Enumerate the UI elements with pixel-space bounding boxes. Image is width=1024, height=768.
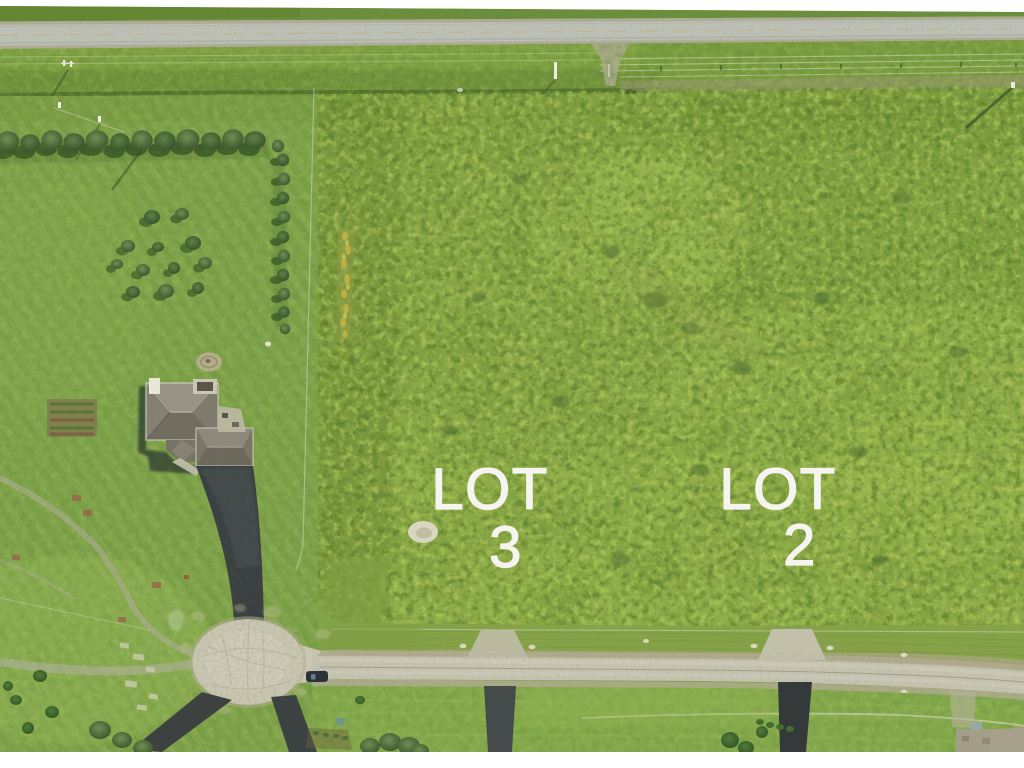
svg-text:LOT: LOT xyxy=(719,457,836,522)
svg-text:3: 3 xyxy=(489,515,523,580)
svg-text:LOT: LOT xyxy=(431,457,548,522)
svg-text:2: 2 xyxy=(783,513,817,578)
